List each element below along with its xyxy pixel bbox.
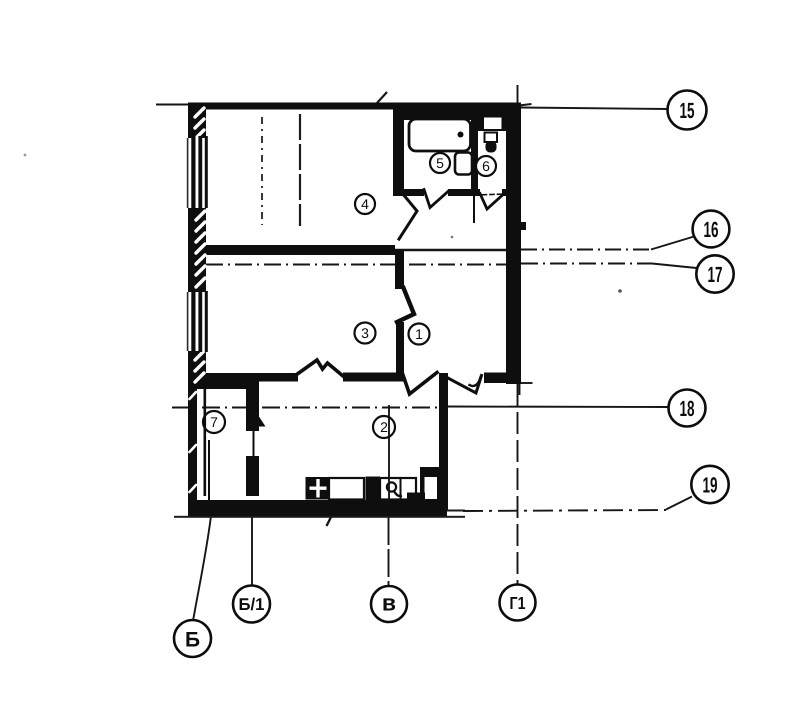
svg-text:2: 2 — [380, 419, 388, 435]
svg-text:19: 19 — [703, 473, 718, 498]
svg-text:7: 7 — [210, 414, 218, 430]
svg-text:3: 3 — [361, 325, 369, 341]
svg-text:18: 18 — [680, 396, 695, 421]
svg-text:в: в — [382, 590, 396, 616]
svg-text:Г1: Г1 — [510, 593, 526, 613]
svg-text:16: 16 — [704, 217, 719, 242]
svg-text:5: 5 — [436, 155, 444, 171]
svg-text:15: 15 — [680, 98, 695, 123]
svg-text:6: 6 — [482, 158, 490, 174]
svg-text:Б/1: Б/1 — [239, 595, 265, 614]
svg-text:17: 17 — [708, 262, 723, 287]
svg-text:1: 1 — [415, 326, 423, 342]
svg-text:4: 4 — [361, 196, 369, 212]
svg-text:Б: Б — [185, 629, 200, 652]
